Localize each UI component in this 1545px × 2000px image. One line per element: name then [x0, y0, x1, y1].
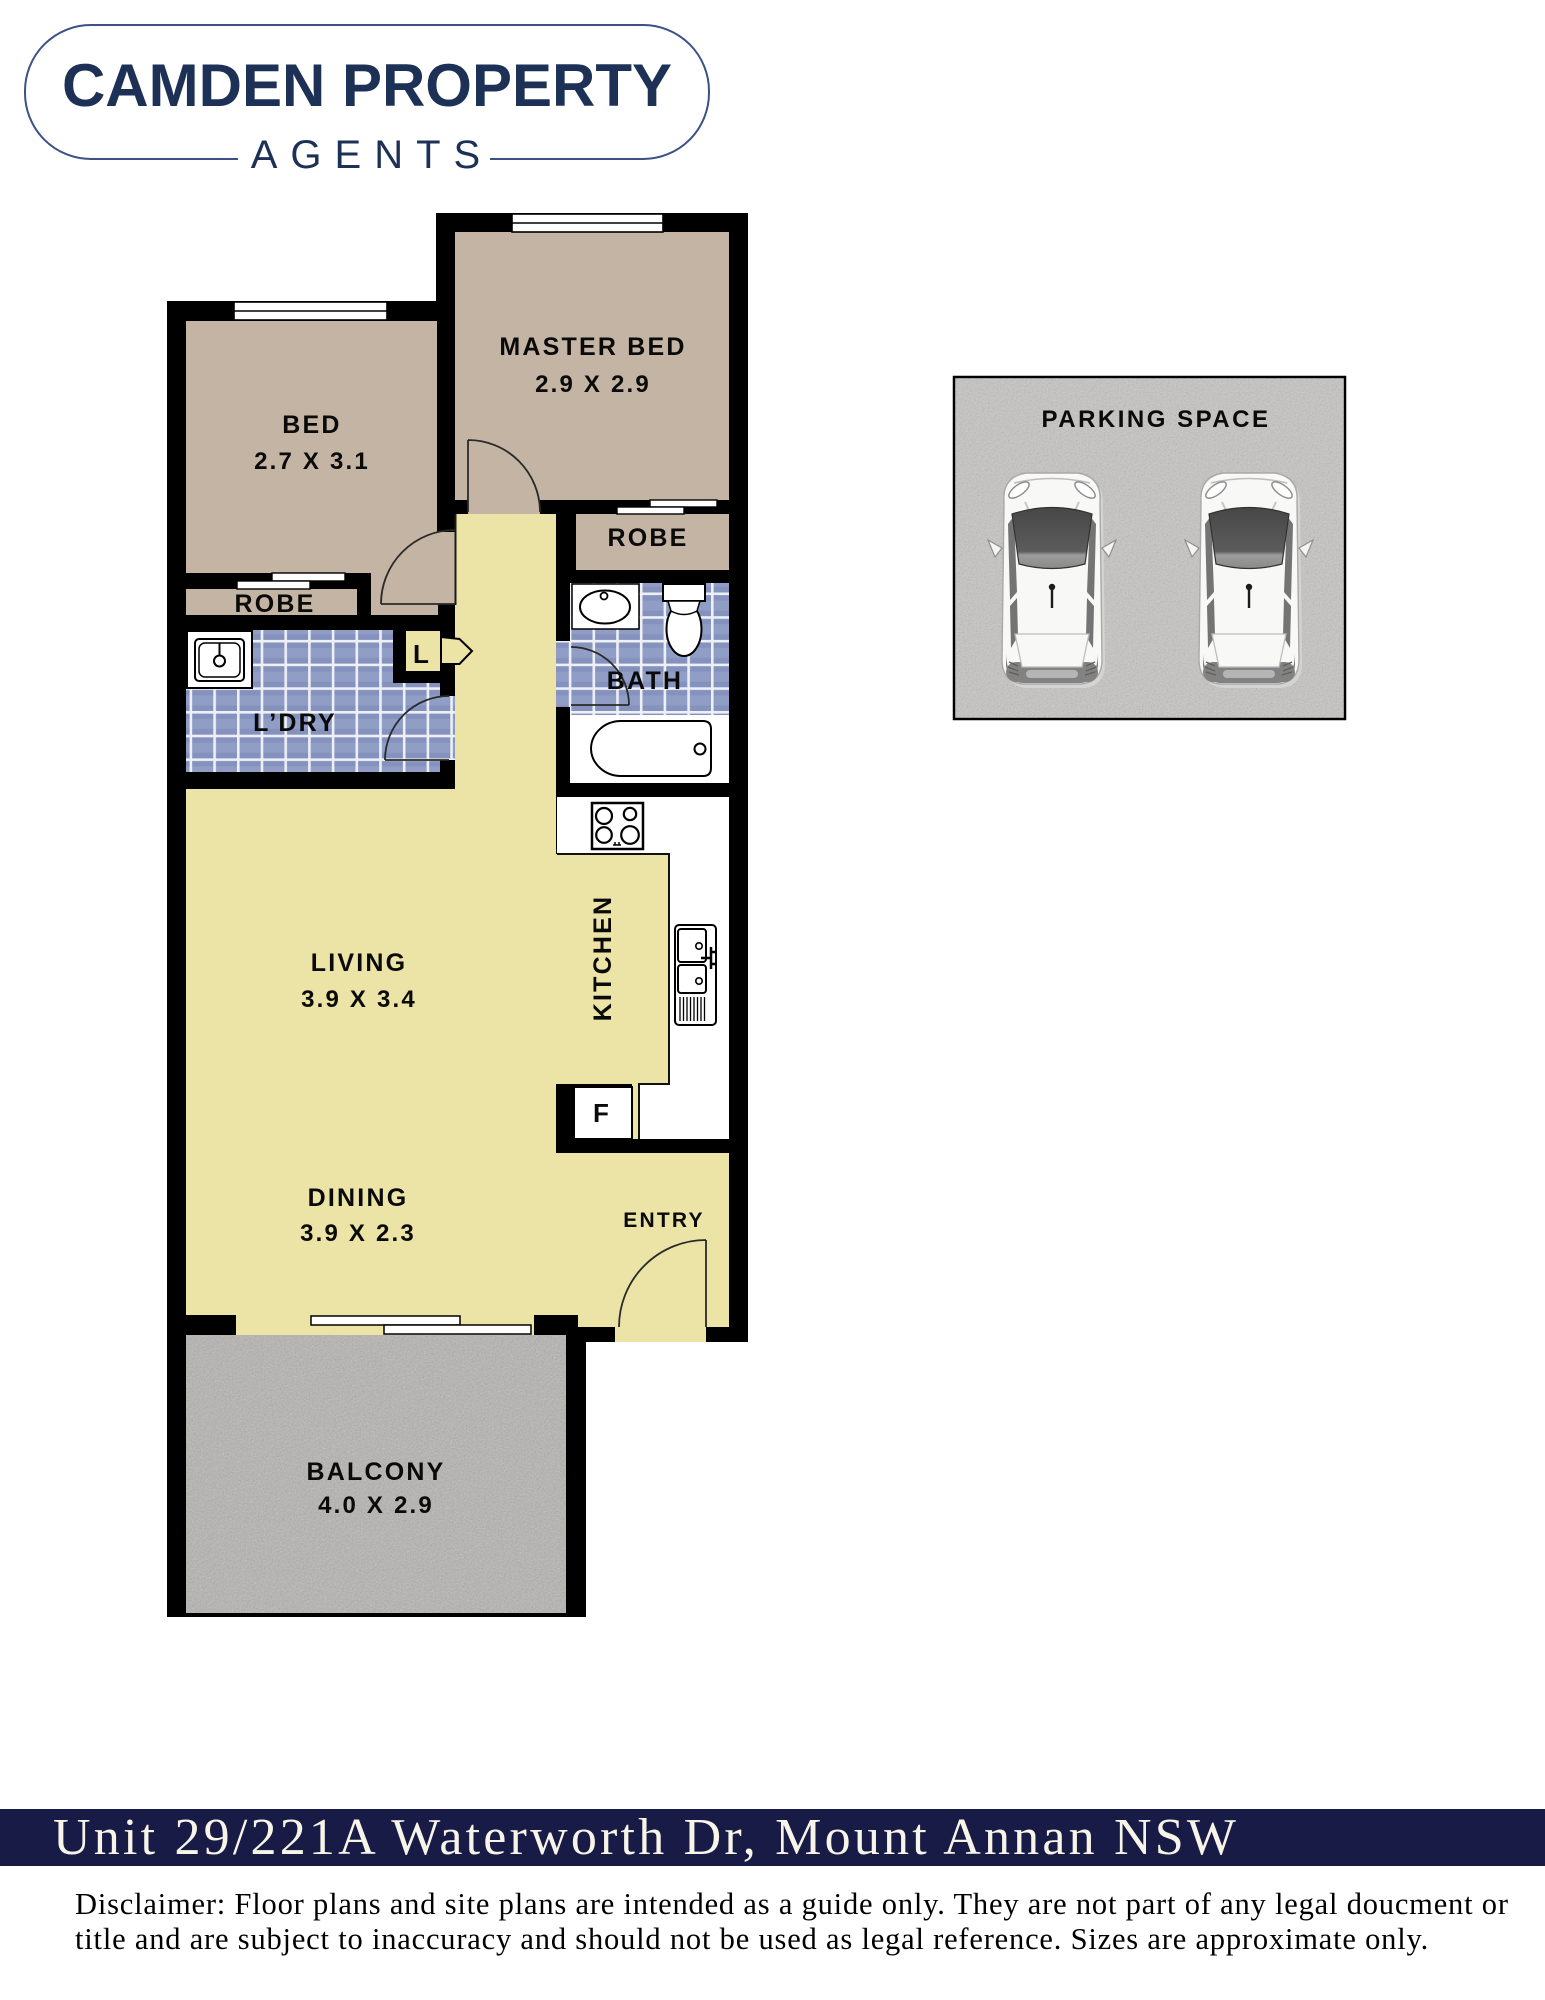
svg-text:DINING: DINING	[308, 1184, 409, 1212]
svg-text:PARKING SPACE: PARKING SPACE	[1042, 406, 1271, 433]
svg-text:Disclaimer: Floor plans and si: Disclaimer: Floor plans and site plans a…	[75, 1887, 1509, 1921]
svg-text:BATH: BATH	[607, 667, 683, 695]
svg-text:MASTER BED: MASTER BED	[499, 333, 686, 361]
svg-text:BALCONY: BALCONY	[306, 1458, 445, 1486]
svg-text:CAMDEN PROPERTY: CAMDEN PROPERTY	[62, 52, 672, 119]
svg-text:2.7 X 3.1: 2.7 X 3.1	[254, 448, 370, 475]
svg-text:LIVING: LIVING	[311, 949, 408, 977]
svg-text:L: L	[413, 639, 431, 669]
svg-text:Unit 29/221A Waterworth Dr, Mo: Unit 29/221A Waterworth Dr, Mount Annan …	[53, 1809, 1239, 1866]
svg-text:ROBE: ROBE	[607, 524, 688, 552]
svg-text:title and are subject to inacc: title and are subject to inaccuracy and …	[75, 1922, 1429, 1956]
svg-text:L’DRY: L’DRY	[253, 709, 337, 737]
svg-text:ENTRY: ENTRY	[623, 1209, 704, 1232]
svg-text:BED: BED	[282, 411, 341, 439]
svg-text:2.9 X 2.9: 2.9 X 2.9	[535, 371, 651, 398]
svg-text:AGENTS: AGENTS	[251, 133, 493, 177]
svg-text:3.9 X 3.4: 3.9 X 3.4	[301, 986, 417, 1013]
svg-text:KITCHEN: KITCHEN	[589, 895, 617, 1022]
svg-text:ROBE: ROBE	[234, 590, 315, 618]
svg-text:3.9 X 2.3: 3.9 X 2.3	[300, 1220, 416, 1247]
svg-text:F: F	[593, 1098, 611, 1128]
svg-text:4.0 X 2.9: 4.0 X 2.9	[318, 1492, 434, 1519]
